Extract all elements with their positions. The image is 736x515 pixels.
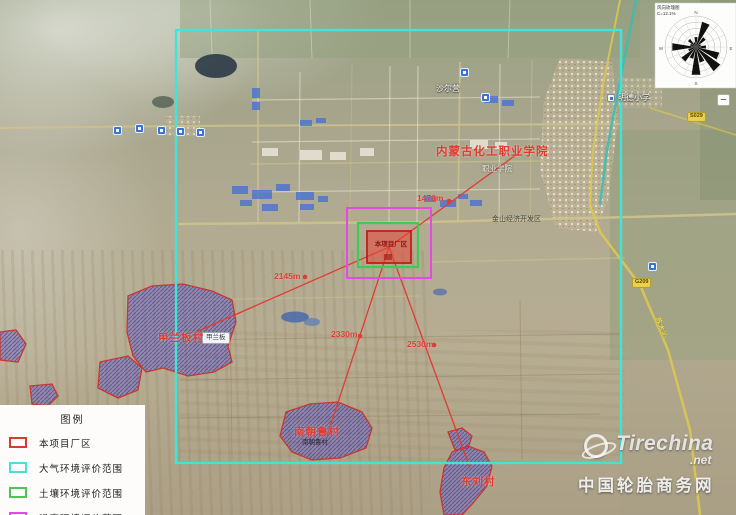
legend-row-air: 大气环境评价范围 — [0, 455, 145, 480]
project-site-label: 本项目厂区 — [368, 241, 414, 248]
sensitive-point-village-east-label: 东刘村 — [461, 477, 496, 488]
village-south-basemap-tag: 南朝鲁村 — [302, 440, 328, 447]
road-shield-s029: S029 — [687, 112, 706, 122]
legend-swatch-project — [9, 437, 27, 448]
map-poi-icon — [481, 93, 490, 102]
sensitive-point-village-south-label: 南朝鲁村 — [294, 427, 340, 438]
legend-label-project: 本项目厂区 — [39, 436, 92, 450]
legend-row-project: 本项目厂区 — [0, 430, 145, 455]
wind-rose-note-1: 风向玫瑰图 — [657, 4, 680, 11]
school-poi-icon — [607, 94, 615, 102]
school-label-right: 明德小学 — [618, 94, 650, 102]
wind-rose-e-label: E — [729, 46, 732, 51]
village-jialanban — [127, 284, 236, 376]
map-zoom-out-button[interactable]: − — [717, 94, 730, 106]
watermark-subtitle: 中国轮胎商务网 — [578, 472, 736, 496]
map-poi-icon — [113, 126, 122, 135]
legend-row-noise: 噪声环境评价范围 — [0, 505, 145, 515]
wind-rose-note-2: C=12.1% — [657, 11, 676, 16]
village-basemap-tag: 甲兰板 — [202, 332, 230, 344]
legend-panel: 图例 本项目厂区 大气环境评价范围 土壤环境评价范围 噪声环境评价范围 — [0, 405, 145, 515]
legend-swatch-soil — [9, 487, 27, 498]
map-poi-icon — [648, 262, 657, 271]
distance-label-school: 1470m — [417, 194, 443, 203]
industrial-zone-label: 金山经济开发区 — [492, 216, 541, 223]
legend-row-soil: 土壤环境评价范围 — [0, 480, 145, 505]
distance-label-south: 2330m — [331, 330, 357, 339]
legend-label-air: 大气环境评价范围 — [39, 461, 123, 475]
distance-label-east: 2530m — [407, 340, 433, 349]
legend-label-noise: 噪声环境评价范围 — [39, 511, 123, 515]
legend-label-soil: 土壤环境评价范围 — [39, 486, 123, 500]
map-poi-icon — [157, 126, 166, 135]
satellite-map-viewport[interactable]: N E S W 风向玫瑰图 C=12.1% 沙尔营 明德小学 职业学院 金山经济… — [0, 0, 736, 515]
project-inner-mark — [384, 254, 392, 260]
distance-label-west: 2145m — [274, 272, 300, 281]
map-poi-icon — [135, 124, 144, 133]
watermark-tld: .net — [690, 453, 711, 467]
place-label-top: 沙尔营 — [436, 85, 460, 93]
road-shield-g209: G209 — [632, 278, 651, 288]
map-poi-icon — [196, 128, 205, 137]
map-poi-icon — [176, 127, 185, 136]
wind-rose: N E S W 风向玫瑰图 C=12.1% — [655, 3, 736, 88]
map-poi-icon — [460, 68, 469, 77]
legend-swatch-air — [9, 462, 27, 473]
watermark: Tirechina .net 中国轮胎商务网 — [578, 430, 736, 496]
sensitive-point-village-west-label: 甲兰板村 — [158, 333, 204, 344]
wind-rose-n-label: N — [694, 10, 697, 15]
vocational-school-label: 职业学院 — [482, 165, 512, 173]
sensitive-point-school-label: 内蒙古化工职业学院 — [436, 147, 549, 159]
wind-rose-s-label: S — [694, 81, 697, 86]
tirechina-logo-icon — [584, 434, 608, 458]
legend-title: 图例 — [0, 411, 145, 426]
